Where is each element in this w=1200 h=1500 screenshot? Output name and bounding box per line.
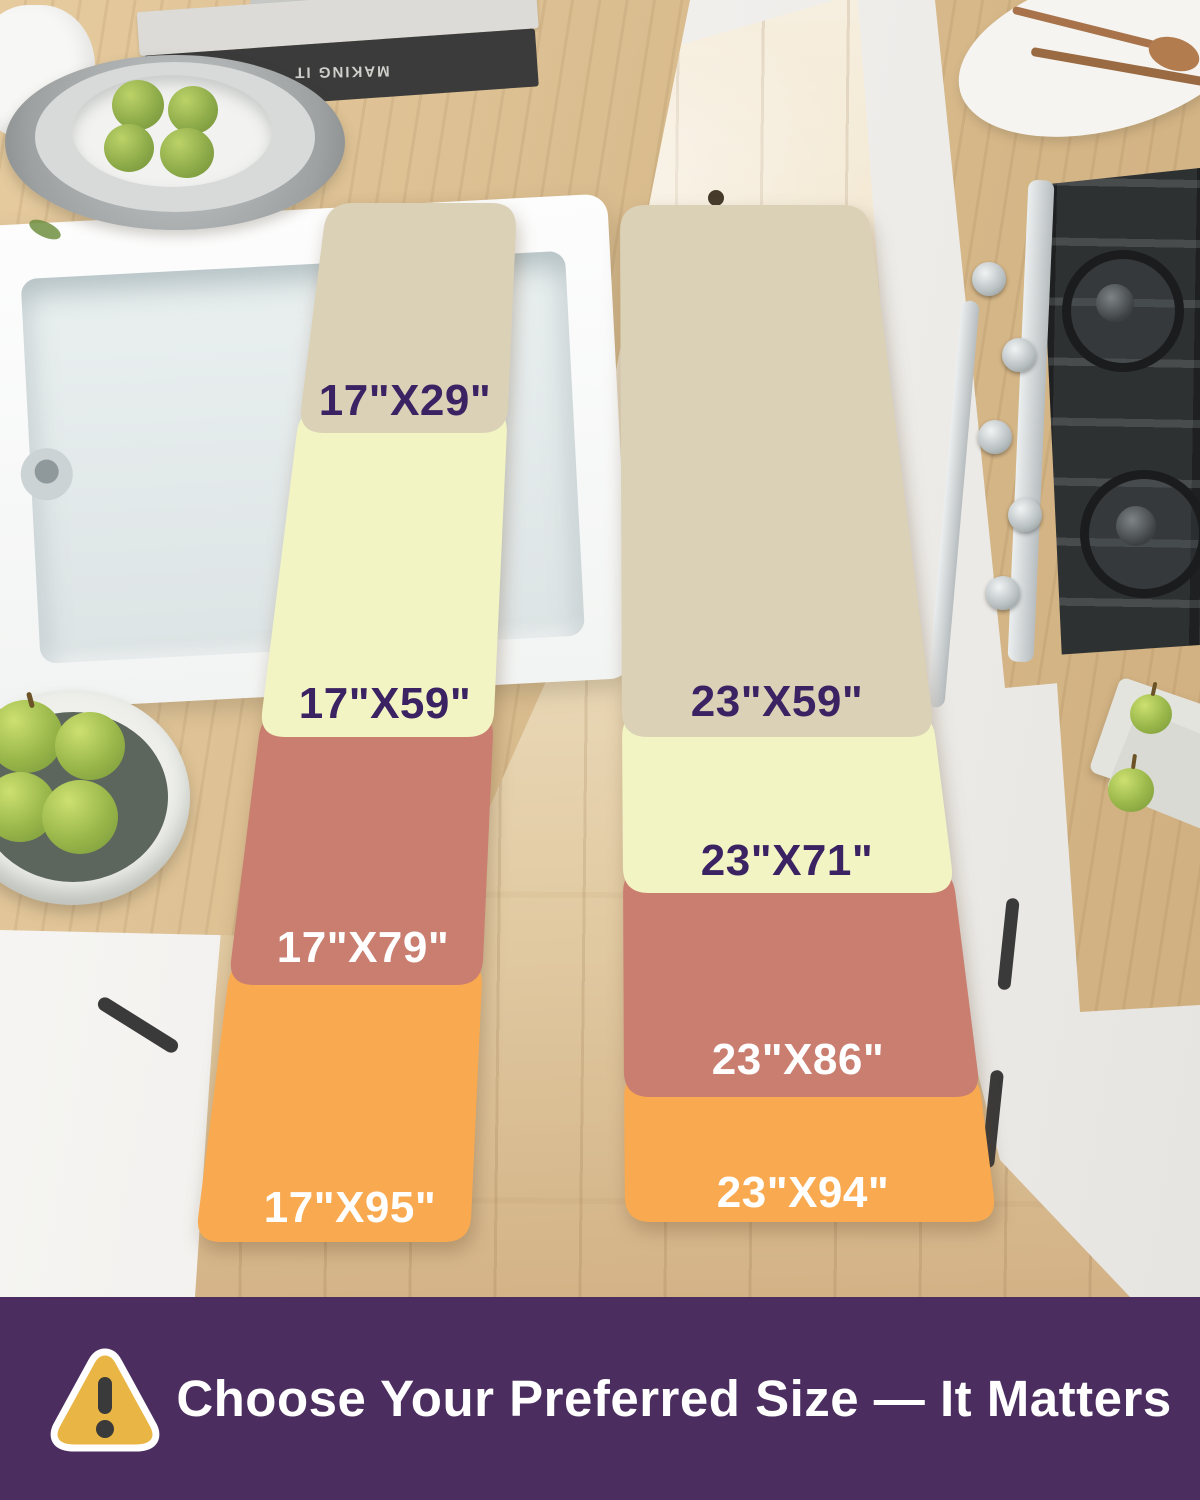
- size-label-17x29: 17"X29": [319, 376, 491, 426]
- size-label-17x79: 17"X79": [277, 923, 449, 973]
- size-label-23x59: 23"X59": [691, 677, 863, 727]
- size-label-23x86: 23"X86": [712, 1035, 884, 1085]
- banner: Choose Your Preferred Size — It Matters: [0, 1297, 1200, 1500]
- warning-triangle-icon: [44, 1343, 166, 1455]
- size-label-17x95: 17"X95": [264, 1183, 436, 1233]
- banner-text: Choose Your Preferred Size — It Matters: [166, 1369, 1200, 1428]
- size-chart: [0, 0, 1200, 1500]
- size-label-17x59: 17"X59": [299, 679, 471, 729]
- size-label-23x94: 23"X94": [717, 1168, 889, 1218]
- scene: MAKING IT: [0, 0, 1200, 1500]
- size-swatch-23x59-beige: [620, 205, 932, 737]
- size-label-23x71: 23"X71": [701, 836, 873, 886]
